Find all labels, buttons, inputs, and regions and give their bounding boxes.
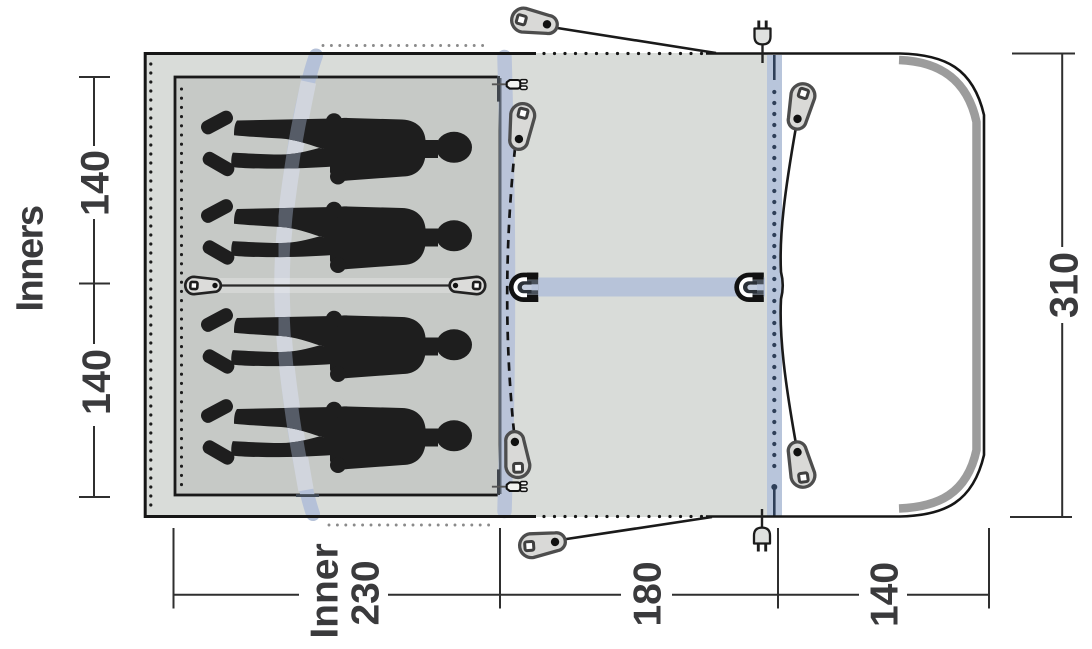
svg-text:230: 230	[344, 560, 387, 625]
svg-text:140: 140	[864, 562, 907, 627]
svg-text:Inner: Inner	[303, 543, 346, 638]
svg-text:310: 310	[1043, 252, 1087, 318]
svg-text:140: 140	[75, 349, 119, 415]
svg-text:180: 180	[627, 561, 670, 626]
svg-text:Inners: Inners	[9, 206, 51, 311]
svg-text:140: 140	[74, 150, 118, 216]
